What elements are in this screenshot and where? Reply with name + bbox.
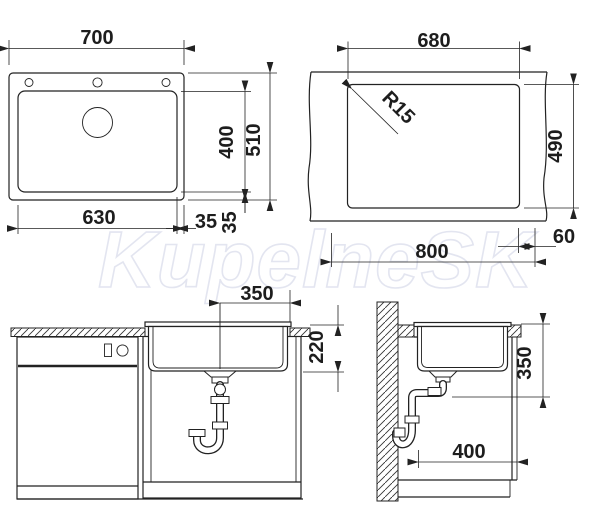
dim-offset-right-label: 35 — [195, 211, 217, 233]
tap-hole-right — [162, 79, 170, 87]
cutout-outline — [348, 85, 520, 209]
dim-clearance-depth: 400 — [419, 441, 518, 468]
dim-overall-width: 700 — [9, 27, 184, 65]
countertop-back-hatch — [398, 325, 414, 337]
sink-top-view: 700 400 510 630 35 — [9, 27, 277, 234]
dim-bowl-depth: 400 — [181, 92, 251, 193]
dim-cutout-depth: 490 — [524, 85, 579, 209]
dim-bowl-inner-depth: 220 — [303, 305, 344, 392]
dim-bowl-depth-label: 400 — [216, 125, 238, 158]
dim-install-height-label: 350 — [514, 346, 536, 379]
wall-section — [377, 302, 398, 501]
side-bowl-outer — [418, 327, 508, 372]
front-sink-section — [145, 303, 291, 371]
control-icon-knob — [117, 345, 128, 356]
left-cabinet — [17, 337, 138, 499]
dim-offset-bottom-label: 35 — [219, 211, 241, 233]
dim-cutout-width-label: 680 — [417, 30, 450, 52]
dim-clearance-depth-label: 400 — [452, 441, 485, 463]
worktop-break-left — [308, 72, 311, 221]
dim-span-label: 800 — [415, 241, 448, 263]
dim-bowl-inner-depth-label: 220 — [306, 330, 328, 363]
tap-hole-center — [93, 78, 102, 87]
sink-rim — [145, 322, 291, 327]
dim-cutout-depth-label: 490 — [545, 129, 567, 162]
tap-hole-left — [25, 79, 33, 87]
drain-hole — [83, 108, 113, 138]
bowl-outline — [18, 91, 177, 192]
corner-radius-callout: R15 — [352, 87, 419, 134]
dim-overall-depth-label: 510 — [243, 123, 265, 156]
sink-outline — [9, 73, 184, 200]
side-plumbing — [394, 371, 457, 444]
side-installation-view: 350 400 — [377, 302, 550, 501]
corner-radius-label: R15 — [377, 87, 419, 129]
front-plumbing — [189, 371, 236, 450]
technical-drawing: KupelneSK 700 400 510 — [0, 0, 600, 510]
dim-overall-width-label: 700 — [80, 27, 113, 49]
front-installation-view: 350 220 — [11, 283, 344, 499]
side-sink-section — [414, 323, 511, 372]
dim-edge-margin-label: 60 — [553, 226, 575, 248]
dim-bowl-width-label: 630 — [82, 207, 115, 229]
countertop-left-hatch — [11, 328, 145, 337]
bowl-outer — [149, 327, 288, 372]
control-icon-rect — [105, 344, 112, 357]
dim-drain-offset-label: 350 — [240, 283, 273, 305]
